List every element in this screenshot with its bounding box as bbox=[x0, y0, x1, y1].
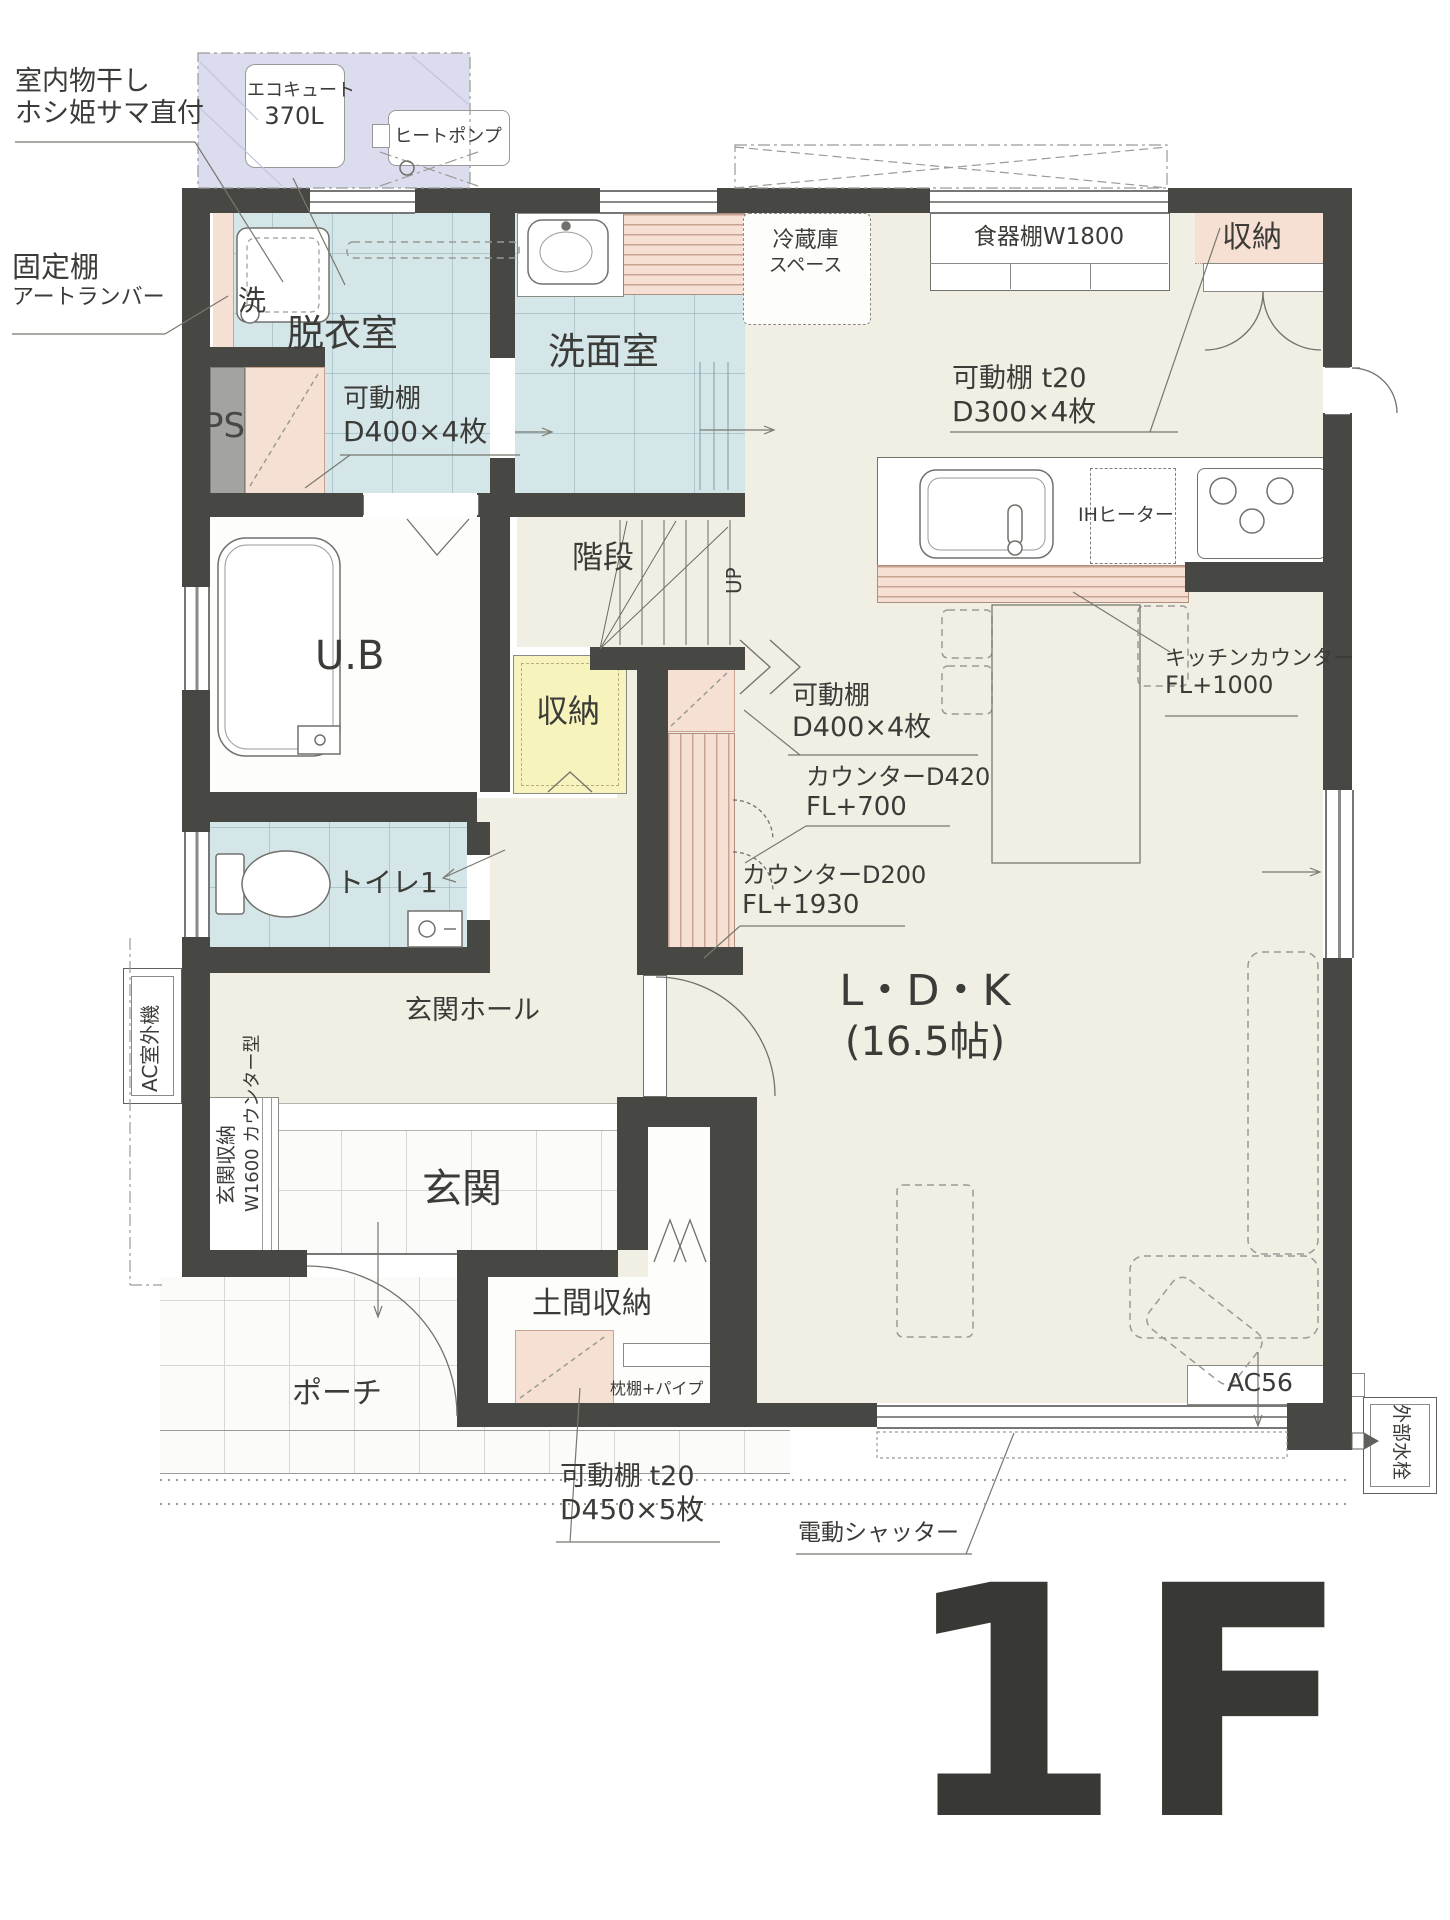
fixed-shelf-line1: 固定棚 bbox=[12, 250, 165, 285]
shelf-doma-line2: D450×5枚 bbox=[560, 1493, 704, 1527]
wall-stairs-bottom bbox=[590, 647, 745, 670]
counter-d200-line2: FL+1930 bbox=[742, 890, 926, 921]
wall-right-1 bbox=[1323, 188, 1352, 367]
wall-counter-bottom bbox=[637, 947, 743, 975]
shelf-ldk-line1: 可動棚 t20 bbox=[952, 363, 1096, 395]
ps-label: PS bbox=[203, 406, 245, 447]
shelf-dressing-line2: D400×4枚 bbox=[343, 415, 487, 449]
wall-top-3 bbox=[717, 188, 930, 213]
wall-hall-column bbox=[637, 670, 668, 973]
hall-door-leaf bbox=[643, 975, 667, 1097]
entrance-hall-label: 玄関ホール bbox=[405, 995, 540, 1027]
ac56-label: AC56 bbox=[1227, 1368, 1293, 1398]
dish-cabinet-split2 bbox=[1090, 263, 1091, 289]
stairs-label: 階段 bbox=[572, 540, 634, 577]
entrance-storage-label2: W1600 カウンター型 bbox=[242, 1035, 264, 1212]
wall-vent bbox=[1350, 1373, 1365, 1397]
counter-d420-line1: カウンターD420 bbox=[806, 763, 990, 792]
kitchen-counter-line2: FL+1000 bbox=[1165, 671, 1354, 700]
indoor-drying-line1: 室内物干し bbox=[15, 66, 204, 98]
shelf-hall-label: 可動棚 D400×4枚 bbox=[792, 681, 931, 745]
shelf-ldk-label: 可動棚 t20 D300×4枚 bbox=[952, 363, 1096, 429]
counter-d200-label: カウンターD200 FL+1930 bbox=[742, 861, 926, 921]
indoor-drying-line2: ホシ姫サマ直付 bbox=[15, 98, 204, 130]
ecocute-line1: エコキュート bbox=[247, 80, 341, 102]
ecocute-line2: 370L bbox=[247, 102, 341, 131]
wall-washroom-bottom bbox=[517, 493, 745, 517]
shelf-doma-line1: 可動棚 t20 bbox=[560, 1461, 704, 1493]
wall-toilet-bottom bbox=[182, 947, 490, 973]
fridge-line2: スペース bbox=[748, 254, 863, 277]
stairside-closet bbox=[667, 667, 735, 732]
window-living-right bbox=[1325, 790, 1354, 958]
ac-outdoor-label: AC室外機 bbox=[138, 1005, 162, 1092]
wall-ub-top bbox=[182, 493, 363, 517]
washer-label: 洗 bbox=[238, 284, 266, 318]
heat-pump-tab bbox=[372, 124, 390, 148]
counter-d420-line2: FL+700 bbox=[806, 792, 990, 823]
wall-ub-right bbox=[480, 517, 510, 792]
door-gap-kitchen-right bbox=[1325, 367, 1350, 415]
dish-cabinet-divider bbox=[930, 263, 1168, 290]
fridge-line1: 冷蔵庫 bbox=[748, 228, 863, 254]
ldk-label: L・D・K (16.5帖) bbox=[810, 966, 1040, 1066]
storage-kitchen-label: 収納 bbox=[1222, 220, 1282, 256]
dressing-closet bbox=[245, 367, 325, 495]
ext-faucet-label: 外部水栓 bbox=[1389, 1404, 1412, 1480]
wall-ldk-bottom bbox=[742, 1403, 877, 1427]
shelf-hall-line1: 可動棚 bbox=[792, 681, 931, 712]
floor-plan-1f: 室内物干し ホシ姫サマ直付 エコキュート 370L ヒートポンプ 固定棚 アート… bbox=[0, 0, 1450, 1920]
wall-doma-bottom bbox=[488, 1403, 742, 1427]
kitchen-counter-line1: キッチンカウンター bbox=[1165, 646, 1354, 671]
door-gap-bath bbox=[363, 495, 479, 515]
fixed-shelf-line2: アートランバー bbox=[12, 285, 165, 311]
window-top-kitchen bbox=[930, 190, 1168, 214]
dressing-room-label: 脱衣室 bbox=[287, 312, 398, 356]
wall-entrance-doma bbox=[617, 1127, 648, 1250]
counter-d200-line1: カウンターD200 bbox=[742, 861, 926, 890]
wall-doma-right bbox=[710, 1127, 757, 1403]
window-top-dressing bbox=[310, 190, 415, 214]
dotted-boundary bbox=[160, 1480, 1350, 1504]
dish-cabinet-label: 食器棚W1800 bbox=[932, 224, 1166, 252]
storage-hall-label: 収納 bbox=[536, 692, 600, 730]
wall-doma-left bbox=[457, 1250, 488, 1427]
wall-corner-br bbox=[1287, 1403, 1352, 1450]
wall-toilet-right-b bbox=[467, 920, 490, 947]
heat-pump-label: ヒートポンプ bbox=[390, 110, 506, 164]
wall-right-2 bbox=[1323, 413, 1352, 790]
toilet-label: トイレ1 bbox=[336, 866, 438, 900]
kitchen-front-panel bbox=[877, 565, 1189, 603]
ecocute-label: エコキュート 370L bbox=[247, 80, 341, 130]
wall-toilet-right-a bbox=[467, 822, 490, 855]
wall-entrance-right-low bbox=[488, 1250, 618, 1277]
porch-label: ポーチ bbox=[292, 1376, 382, 1412]
ih-heater-label: IHヒーター bbox=[1078, 504, 1174, 527]
bath-label: U.B bbox=[315, 632, 384, 680]
up-label: UP bbox=[722, 567, 746, 594]
fixed-shelf-label: 固定棚 アートランバー bbox=[12, 250, 165, 311]
wall-toilet-top bbox=[182, 792, 477, 822]
ldk-line1: L・D・K bbox=[810, 966, 1040, 1018]
kitchen-counter-label: キッチンカウンター FL+1000 bbox=[1165, 646, 1354, 700]
wall-right-3 bbox=[1323, 958, 1352, 1403]
wall-dressing-washroom-a bbox=[490, 213, 515, 358]
dish-cabinet-split1 bbox=[1010, 263, 1011, 289]
counter-d420-label: カウンターD420 FL+700 bbox=[806, 763, 990, 823]
floor-tag: 1F bbox=[900, 1545, 1361, 1865]
shelf-dressing-label: 可動棚 D400×4枚 bbox=[343, 384, 487, 449]
wall-top-2 bbox=[415, 188, 600, 213]
wall-dressing-washroom-b bbox=[490, 458, 515, 517]
entrance-storage-label1: 玄関収納 bbox=[214, 1125, 238, 1205]
door-gap-dressing-washroom bbox=[492, 358, 513, 458]
shelf-doma-label: 可動棚 t20 D450×5枚 bbox=[560, 1461, 704, 1527]
door-gap-toilet bbox=[467, 855, 490, 920]
door-gap-entrance bbox=[307, 1253, 457, 1276]
stove-unit bbox=[1197, 468, 1327, 559]
wall-left-1 bbox=[182, 188, 210, 587]
ldk-line2: (16.5帖) bbox=[810, 1018, 1040, 1066]
shelf-hall-line2: D400×4枚 bbox=[792, 712, 931, 744]
counter-slat-wall bbox=[667, 733, 735, 949]
doma-closet bbox=[515, 1330, 614, 1405]
fixed-shelf-strip bbox=[213, 213, 234, 360]
indoor-drying-label: 室内物干し ホシ姫サマ直付 bbox=[15, 66, 204, 131]
kitchen-wall-stub bbox=[1185, 562, 1325, 592]
washroom-label: 洗面室 bbox=[548, 330, 659, 374]
entrance-label: 玄関 bbox=[422, 1165, 502, 1213]
vanity-slat-counter bbox=[622, 213, 745, 295]
entrance-step-band bbox=[277, 1103, 619, 1131]
vanity-unit bbox=[517, 213, 624, 297]
window-toilet bbox=[184, 832, 210, 937]
roof-x-lines bbox=[735, 147, 1167, 188]
window-bath bbox=[184, 587, 210, 690]
window-living-bottom bbox=[877, 1405, 1287, 1429]
makura-shelf-label: 枕棚+パイプ bbox=[610, 1379, 703, 1398]
storage-kitchen-shelf bbox=[1203, 263, 1325, 292]
shelf-ldk-line2: D300×4枚 bbox=[952, 395, 1096, 429]
window-top-washroom bbox=[600, 190, 717, 214]
stairs-floor bbox=[517, 517, 745, 647]
wall-doma-top bbox=[617, 1097, 757, 1127]
shelf-dressing-line1: 可動棚 bbox=[343, 384, 487, 415]
fridge-label: 冷蔵庫 スペース bbox=[748, 228, 863, 277]
wall-entrance-bottom bbox=[182, 1250, 307, 1277]
makura-shelf-band bbox=[623, 1343, 712, 1367]
doma-storage-label: 土間収納 bbox=[532, 1286, 652, 1322]
wall-left-3 bbox=[182, 937, 210, 1253]
